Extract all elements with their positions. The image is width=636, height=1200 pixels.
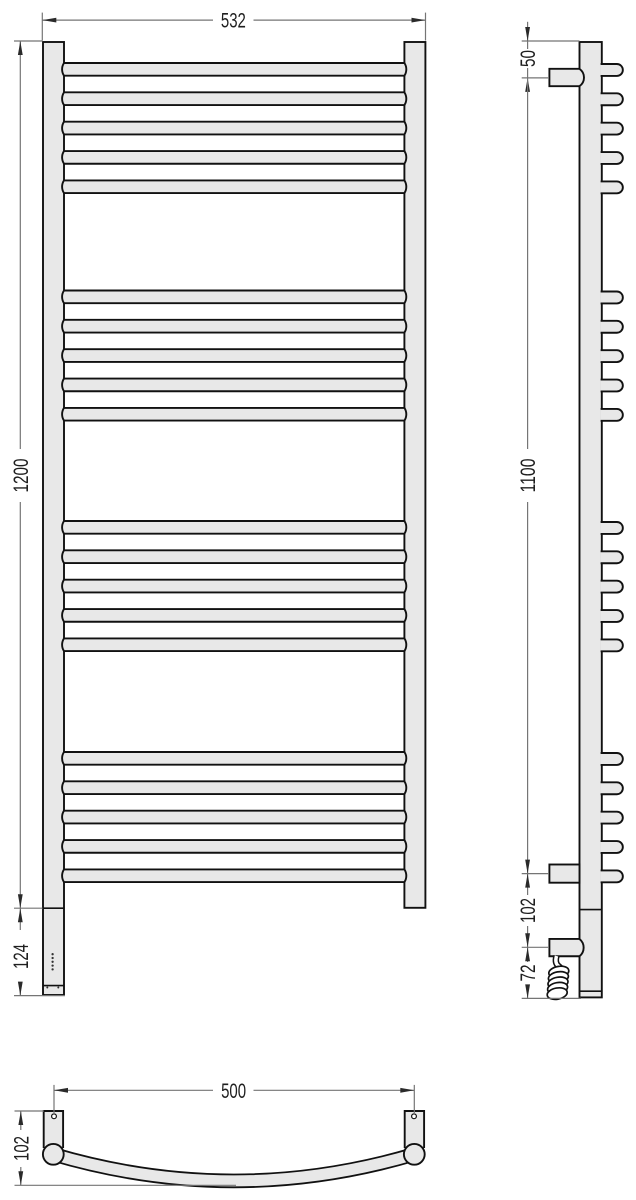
svg-text:532: 532 (221, 9, 246, 33)
svg-text:50: 50 (516, 50, 540, 67)
svg-text:500: 500 (221, 1079, 246, 1103)
svg-text:1100: 1100 (516, 458, 540, 492)
svg-text:72: 72 (516, 965, 540, 982)
svg-text:1200: 1200 (9, 458, 33, 492)
svg-text:102: 102 (9, 1136, 33, 1161)
svg-text:102: 102 (516, 898, 540, 923)
svg-text:124: 124 (9, 944, 33, 969)
